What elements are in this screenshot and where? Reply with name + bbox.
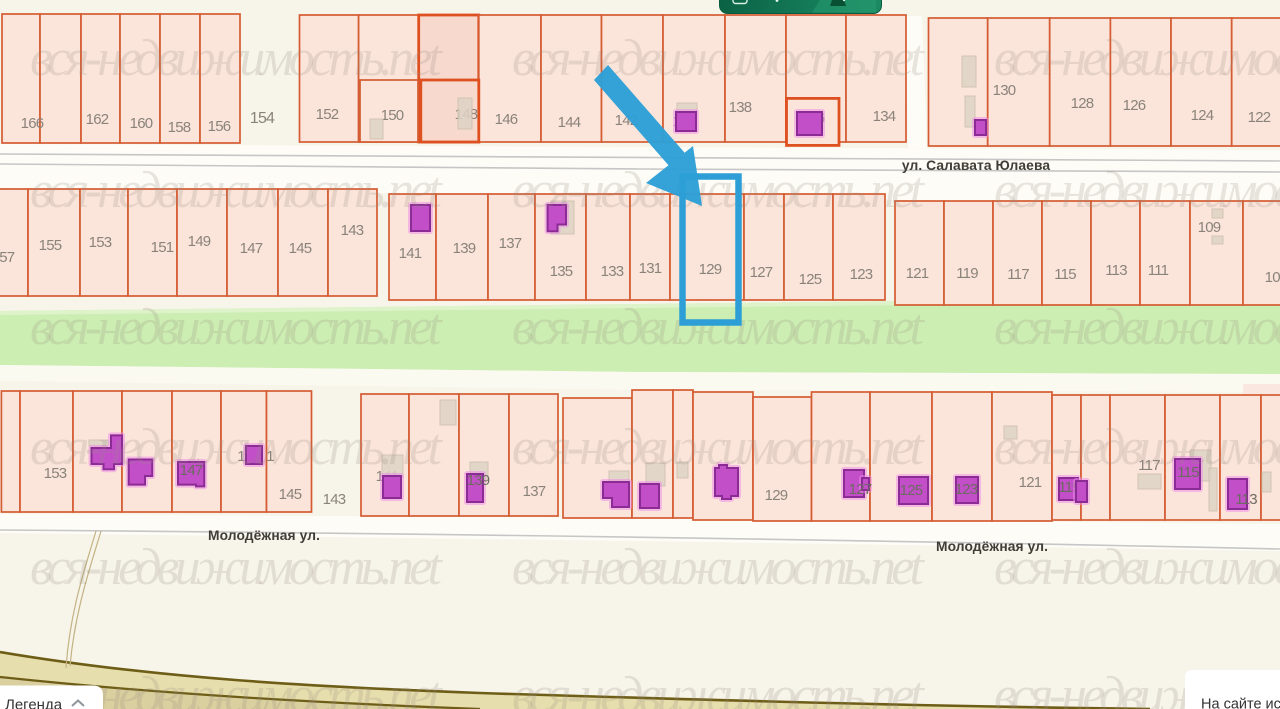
svg-text:158: 158 bbox=[168, 119, 191, 136]
svg-text:141: 141 bbox=[399, 245, 422, 262]
svg-text:127: 127 bbox=[750, 264, 773, 281]
svg-text:вся-недвижимость.net: вся-недвижимость.net bbox=[512, 30, 926, 87]
svg-text:111: 111 bbox=[1148, 262, 1169, 279]
svg-text:107: 107 bbox=[1265, 269, 1280, 286]
svg-text:113: 113 bbox=[1105, 262, 1127, 279]
svg-text:153: 153 bbox=[89, 234, 112, 251]
svg-text:124: 124 bbox=[1191, 107, 1214, 124]
svg-text:123: 123 bbox=[955, 481, 978, 498]
svg-text:121: 121 bbox=[1019, 474, 1042, 491]
svg-text:вся-недвижимость.net: вся-недвижимость.net bbox=[994, 299, 1280, 356]
svg-text:115: 115 bbox=[1054, 266, 1076, 283]
svg-text:162: 162 bbox=[86, 111, 109, 128]
svg-text:126: 126 bbox=[1123, 97, 1146, 114]
svg-text:вся-недвижимость.net: вся-недвижимость.net bbox=[512, 299, 926, 356]
svg-text:137: 137 bbox=[523, 483, 546, 500]
svg-text:157: 157 bbox=[0, 249, 15, 266]
svg-text:117: 117 bbox=[1007, 266, 1029, 283]
svg-text:156: 156 bbox=[208, 118, 231, 135]
svg-text:143: 143 bbox=[341, 222, 364, 239]
svg-text:вся-недвижимость.net: вся-недвижимость.net bbox=[512, 419, 926, 476]
svg-text:139: 139 bbox=[467, 472, 490, 489]
svg-text:133: 133 bbox=[601, 263, 624, 280]
svg-text:155: 155 bbox=[39, 237, 62, 254]
svg-text:вся-недвижимость.net: вся-недвижимость.net bbox=[512, 162, 926, 219]
svg-text:134: 134 bbox=[873, 108, 896, 125]
svg-text:145: 145 bbox=[289, 240, 312, 257]
svg-text:131: 131 bbox=[639, 260, 662, 277]
svg-text:139: 139 bbox=[453, 240, 476, 257]
svg-text:122: 122 bbox=[1248, 109, 1271, 126]
svg-text:На сайте ис: На сайте ис bbox=[1201, 697, 1280, 709]
svg-text:вся-недвижимость.net: вся-недвижимость.net bbox=[30, 30, 444, 87]
svg-text:160: 160 bbox=[130, 115, 153, 132]
svg-text:149: 149 bbox=[188, 233, 211, 250]
svg-text:135: 135 bbox=[550, 263, 573, 280]
svg-text:150: 150 bbox=[381, 107, 404, 124]
svg-text:166: 166 bbox=[21, 115, 44, 132]
svg-text:147: 147 bbox=[240, 240, 263, 257]
svg-text:123: 123 bbox=[850, 266, 873, 283]
svg-text:151: 151 bbox=[151, 239, 174, 256]
svg-text:154: 154 bbox=[250, 110, 275, 127]
svg-text:вся-недвижимость.net: вся-недвижимость.net bbox=[30, 539, 444, 596]
svg-text:152: 152 bbox=[316, 106, 339, 123]
svg-text:вся-недвижимость.net: вся-недвижимость.net bbox=[512, 539, 926, 596]
svg-text:129: 129 bbox=[765, 487, 788, 504]
svg-text:вся-недвижимость.net: вся-недвижимость.net bbox=[30, 419, 444, 476]
svg-text:Легенда: Легенда bbox=[5, 697, 63, 709]
svg-text:144: 144 bbox=[558, 114, 581, 131]
svg-text:вся-недвижимость.net: вся-недвижимость.net bbox=[30, 299, 444, 356]
svg-text:145: 145 bbox=[279, 486, 302, 503]
svg-text:вся-недвижимость.net: вся-недвижимость.net bbox=[994, 162, 1280, 219]
svg-text:109: 109 bbox=[1198, 219, 1221, 236]
svg-text:128: 128 bbox=[1071, 95, 1094, 112]
svg-text:138: 138 bbox=[729, 99, 752, 116]
svg-text:121: 121 bbox=[906, 265, 929, 282]
svg-text:125: 125 bbox=[799, 271, 822, 288]
svg-text:119: 119 bbox=[956, 265, 978, 282]
svg-text:вся-недвижимость.net: вся-недвижимость.net bbox=[994, 539, 1280, 596]
svg-text:вся-недвижимость.net: вся-недвижимость.net bbox=[994, 30, 1280, 87]
svg-text:129: 129 bbox=[699, 261, 722, 278]
svg-text:вся-недвижимость.net: вся-недвижимость.net bbox=[30, 162, 444, 219]
svg-text:137: 137 bbox=[499, 235, 522, 252]
svg-text:125: 125 bbox=[900, 482, 923, 499]
svg-text:146: 146 bbox=[495, 111, 518, 128]
svg-text:113: 113 bbox=[1235, 491, 1257, 508]
svg-text:127: 127 bbox=[849, 481, 872, 498]
svg-text:вся-недвижимость.net: вся-недвижимость.net bbox=[512, 667, 926, 709]
svg-text:вся-недвижимость.net: вся-недвижимость.net bbox=[994, 419, 1280, 476]
svg-text:143: 143 bbox=[323, 491, 346, 508]
